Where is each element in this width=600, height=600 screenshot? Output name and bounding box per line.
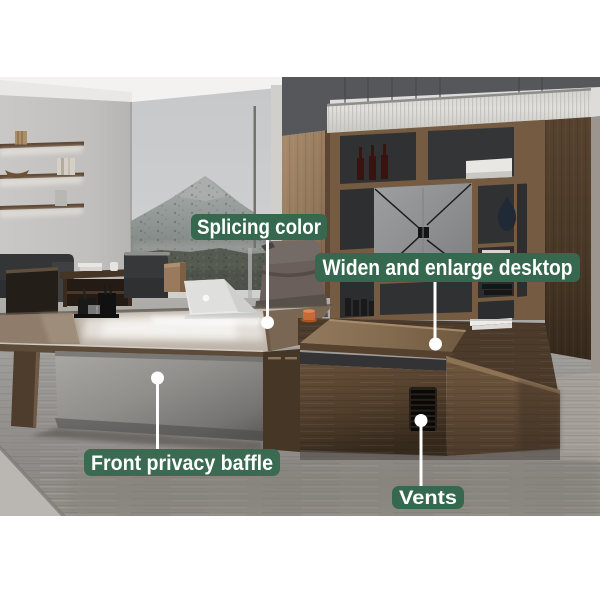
svg-text:Vents: Vents bbox=[399, 488, 457, 509]
svg-text:Widen and enlarge desktop: Widen and enlarge desktop bbox=[323, 255, 573, 280]
svg-text:Splicing color: Splicing color bbox=[197, 216, 321, 239]
svg-text:Front privacy baffle: Front privacy baffle bbox=[91, 452, 273, 475]
